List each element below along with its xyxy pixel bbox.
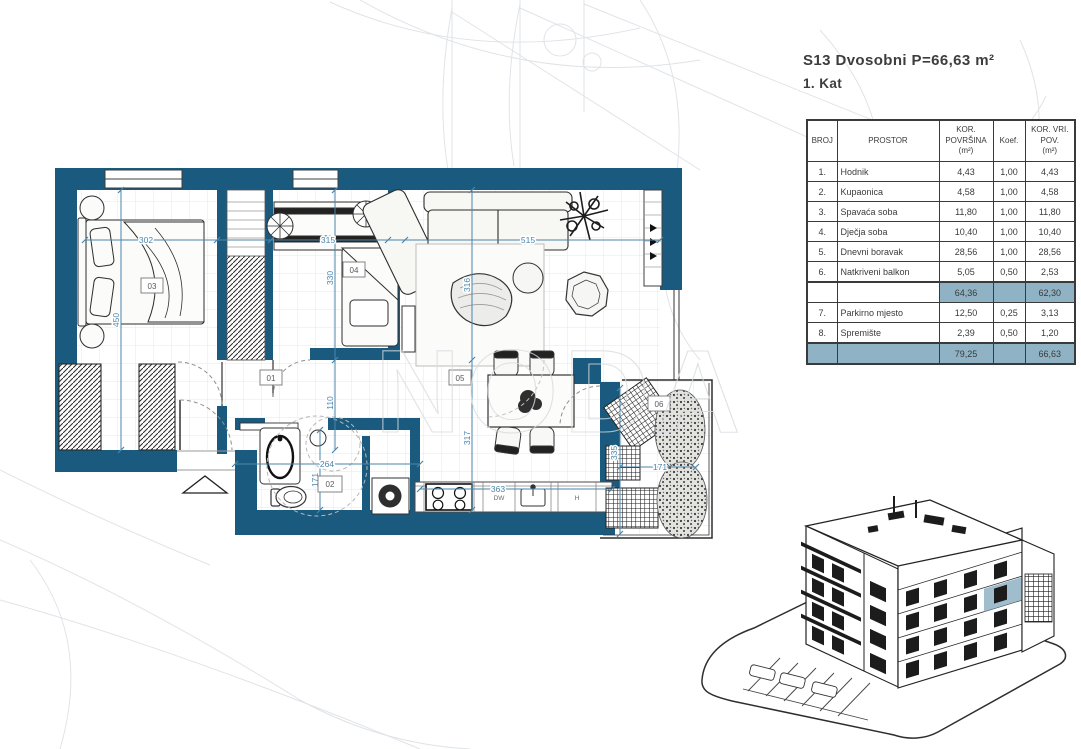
armchair [566,272,608,316]
table-row: 64,3662,30 [807,282,1075,303]
closet [227,190,265,360]
table-row: 3.Spavaća soba11,801,0011,80 [807,202,1075,222]
table-row: 79,2566,63 [807,343,1075,364]
col-kor-povrsina: KOR. POVRŠINA (m²) [939,120,993,162]
floor-plan: DW H [28,148,728,548]
room-label-hall: 01 [267,374,276,383]
dim-bedroom-width: 302 [139,235,153,245]
washing-machine [372,478,409,514]
table-row: 4.Dječja soba10,401,0010,40 [807,222,1075,242]
col-koef: Koef. [993,120,1025,162]
dim-living-height: 316 [462,278,472,292]
dim-bedroom-height: 450 [111,313,121,327]
glass-wall [674,290,712,380]
entrance-arrow [183,476,227,493]
stove [426,484,472,510]
room-label-bedroom: 03 [148,282,157,291]
dishwasher-label: DW [494,495,506,502]
area-table-wrap: BROJ PROSTOR KOR. POVRŠINA (m²) Koef. KO… [806,119,1076,365]
dim-dining-height: 317 [462,431,472,445]
dim-living-width: 515 [521,235,535,245]
dim-balcony-width: 171 [653,462,667,472]
rooms-table: BROJ PROSTOR KOR. POVRŠINA (m²) Koef. KO… [806,119,1076,365]
dim-child-height: 330 [325,271,335,285]
room-label-balcony: 06 [655,400,664,409]
radiator-niche [644,190,662,286]
bathtub [260,428,300,484]
dim-balcony-height: 335 [609,446,619,460]
room-label-living: 05 [456,374,465,383]
title-block: S13 Dvosobni P=66,63 m² 1. Kat [803,52,994,91]
dining-table [488,375,574,427]
dim-hall-height: 110 [325,396,335,410]
page-subtitle: 1. Kat [803,76,994,91]
dim-kitchen-width: 363 [491,484,505,494]
room-label-child-room: 04 [350,266,359,275]
page-title: S13 Dvosobni P=66,63 m² [803,52,994,69]
table-row: 8.Spremište2,390,501,20 [807,323,1075,344]
building-illustration [688,486,1081,749]
table-row: 6.Natkriveni balkon5,050,502,53 [807,262,1075,283]
parking-lot [743,658,870,720]
table-row: 1.Hodnik4,431,004,43 [807,162,1075,182]
col-prostor: PROSTOR [837,120,939,162]
table-row: 5.Dnevni boravak28,561,0028,56 [807,242,1075,262]
kitchen-counter: DW H [415,482,612,512]
dim-child-width: 315 [321,235,335,245]
table-row: 2.Kupaonica4,581,004,58 [807,182,1075,202]
dim-bath-width: 264 [320,459,334,469]
room-label-bathroom: 02 [326,480,335,489]
ottoman [513,263,543,293]
col-broj: BROJ [807,120,837,162]
col-kor-vri-pov: KOR. VRI. POV. (m²) [1025,120,1075,162]
hood-label: H [575,495,580,502]
garage-pergola [1022,540,1054,652]
toilet [271,487,306,508]
table-header-row: BROJ PROSTOR KOR. POVRŠINA (m²) Koef. KO… [807,120,1075,162]
table-row: 7.Parkirno mjesto12,500,253,13 [807,303,1075,323]
building-body [801,496,1054,688]
